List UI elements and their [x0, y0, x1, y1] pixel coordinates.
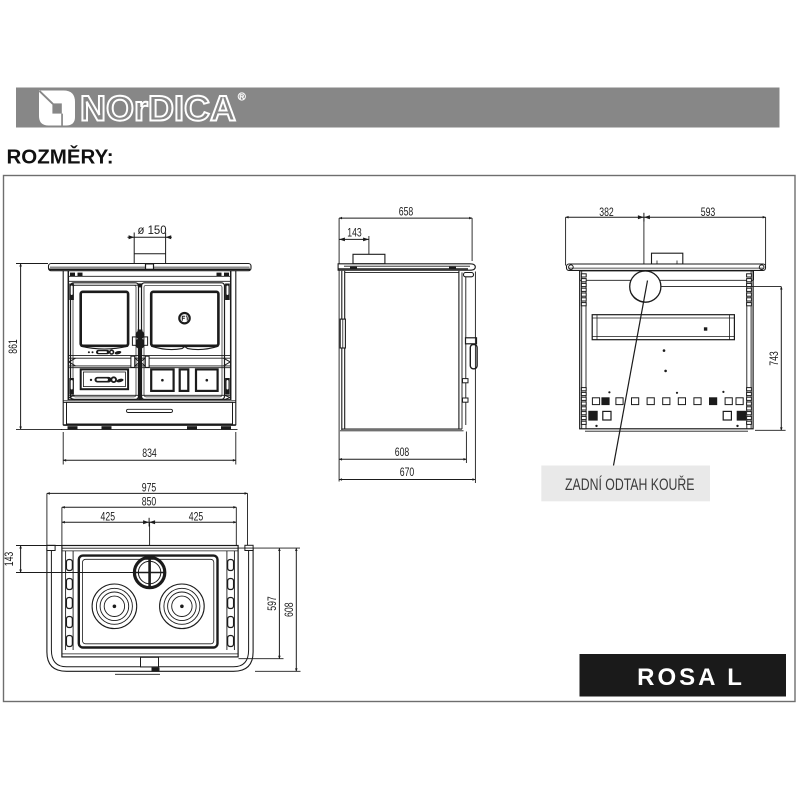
svg-text:861: 861	[6, 339, 20, 354]
svg-text:608: 608	[282, 602, 296, 617]
svg-text:R: R	[239, 94, 244, 101]
svg-text:143: 143	[347, 226, 362, 240]
svg-text:597: 597	[265, 596, 279, 611]
svg-text:850: 850	[142, 495, 157, 509]
svg-text:ZADNÍ ODTAH KOUŘE: ZADNÍ ODTAH KOUŘE	[565, 475, 695, 494]
svg-text:975: 975	[142, 481, 157, 495]
svg-text:658: 658	[399, 205, 414, 219]
svg-text:143: 143	[2, 552, 16, 567]
svg-text:NOrDICA: NOrDICA	[80, 90, 236, 129]
svg-text:425: 425	[189, 509, 204, 523]
svg-text:425: 425	[101, 509, 116, 523]
svg-text:670: 670	[400, 465, 415, 479]
svg-text:ø 150: ø 150	[138, 223, 167, 237]
svg-text:834: 834	[142, 446, 157, 460]
svg-text:ROZMĚRY:: ROZMĚRY:	[7, 145, 114, 169]
svg-text:743: 743	[767, 351, 781, 366]
svg-text:ROSA L: ROSA L	[637, 664, 745, 691]
svg-text:608: 608	[395, 445, 410, 459]
